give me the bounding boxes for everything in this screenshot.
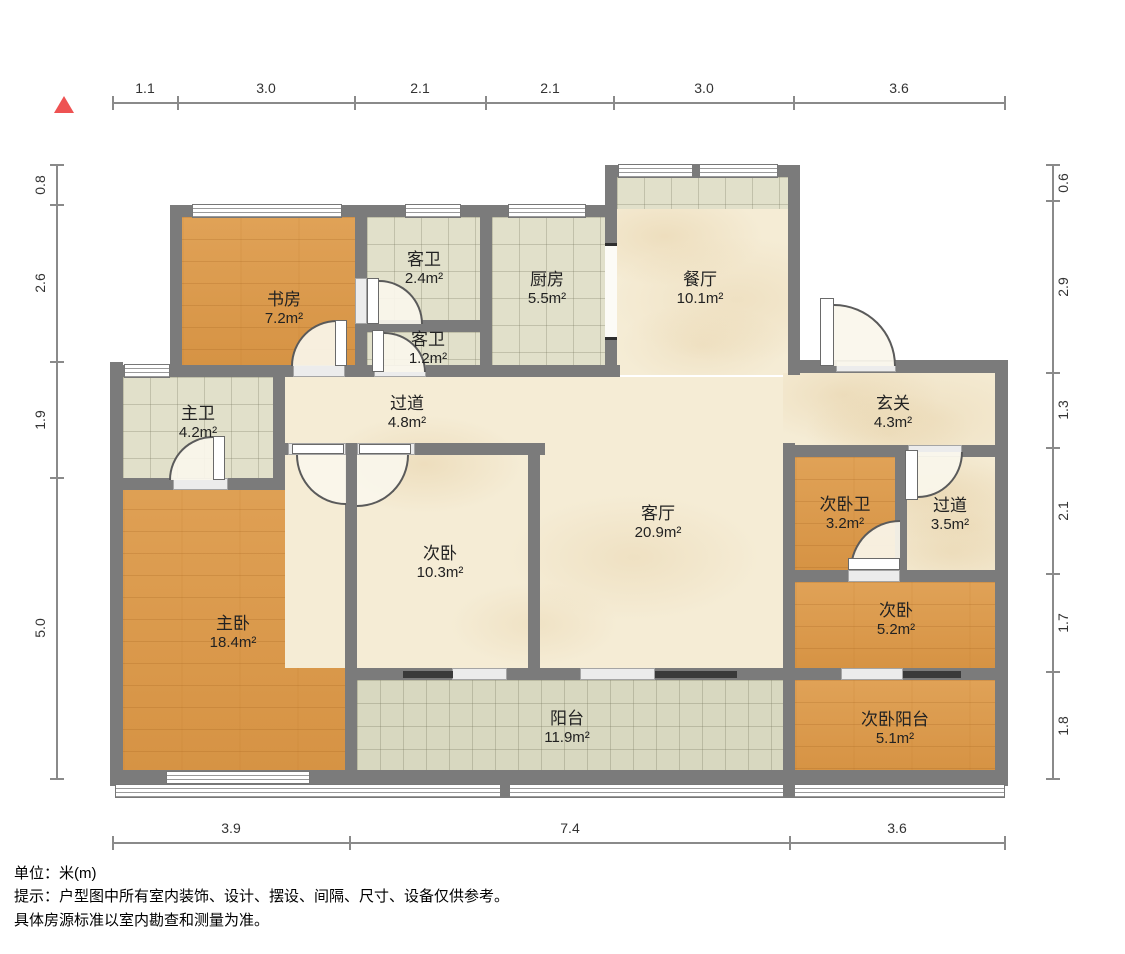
north-arrow-icon <box>54 96 74 113</box>
master-bedroom-window <box>166 771 310 784</box>
dim-right-1: 0.6 <box>1055 173 1071 192</box>
dim-top-6: 3.6 <box>889 80 908 96</box>
room-label-master-bath: 主卫 4.2m² <box>179 399 217 441</box>
dim-tick <box>1046 372 1060 374</box>
dim-tick <box>50 204 64 206</box>
room-label-study: 书房 7.2m² <box>265 285 303 327</box>
wall-dining-right <box>788 165 800 375</box>
dim-tick <box>1046 164 1060 166</box>
dim-top-4: 2.1 <box>540 80 559 96</box>
dim-tick <box>50 164 64 166</box>
footer-notes: 单位：米(m) 提示：户型图中所有室内装饰、设计、摆设、间隔、尺寸、设备仅供参考… <box>14 862 509 932</box>
dim-tick <box>112 96 114 110</box>
room-label-dining: 餐厅 10.1m² <box>677 265 724 307</box>
dim-tick <box>485 96 487 110</box>
entry-door-leaf <box>820 298 834 366</box>
dim-line-left <box>56 165 58 780</box>
dim-left-1: 0.8 <box>32 175 48 194</box>
balcony-slider-panel <box>452 668 507 680</box>
dim-tick <box>789 836 791 850</box>
dim-top-3: 2.1 <box>410 80 429 96</box>
bedroom3-slider-panel <box>841 668 903 680</box>
room-label-master: 主卧 18.4m² <box>210 609 257 651</box>
dim-right-5: 1.7 <box>1055 613 1071 632</box>
wall-bath-kitchen-divider <box>480 205 492 377</box>
bedroom2-door-leaf <box>359 444 411 454</box>
dim-tick <box>1004 836 1006 850</box>
dim-right-3: 1.3 <box>1055 400 1071 419</box>
room-label-bedroom-balcony: 次卧阳台 5.1m² <box>861 705 929 747</box>
dim-tick <box>1046 447 1060 449</box>
room-label-living: 客厅 20.9m² <box>635 499 682 541</box>
balcony-slider-panel <box>580 668 655 680</box>
dim-left-2: 2.6 <box>32 273 48 292</box>
dim-top-5: 3.0 <box>694 80 713 96</box>
dim-bottom-3: 3.6 <box>887 820 906 836</box>
dim-tick <box>354 96 356 110</box>
wall-masterbath-right <box>273 365 285 490</box>
entry-door-arc <box>834 304 896 366</box>
study-window <box>192 204 342 218</box>
dim-bottom-1: 3.9 <box>221 820 240 836</box>
room-label-bedroom2: 次卧 10.3m² <box>417 539 464 581</box>
room-label-kitchen: 厨房 5.5m² <box>528 265 566 307</box>
dim-bottom-2: 7.4 <box>560 820 579 836</box>
wall-study-left <box>170 205 182 377</box>
dim-tick <box>1046 778 1060 780</box>
glazing-mullion <box>783 784 795 798</box>
dim-left-4: 5.0 <box>32 618 48 637</box>
dining-window-mullion <box>692 164 700 178</box>
kitchen-opening <box>605 243 617 340</box>
balcony-slider-track <box>403 671 453 678</box>
dining-bay-strip <box>617 177 788 209</box>
guest-bath-door-leaf <box>367 278 379 324</box>
dim-tick <box>793 96 795 110</box>
dim-tick <box>613 96 615 110</box>
dim-top-1: 1.1 <box>135 80 154 96</box>
room-label-small-bath: 客卫 1.2m² <box>409 325 447 367</box>
bedroom3-slider-track <box>903 671 961 678</box>
study-door-leaf <box>335 320 347 366</box>
dim-tick <box>1046 200 1060 202</box>
wall-left-exterior <box>110 362 123 786</box>
dim-tick <box>1046 671 1060 673</box>
room-label-entry: 玄关 4.3m² <box>874 389 912 431</box>
kitchen-window <box>508 204 586 218</box>
bath3-door-leaf <box>848 558 900 570</box>
dim-tick <box>50 477 64 479</box>
room-label-hallway: 过道 4.8m² <box>388 389 426 431</box>
balcony-glazing <box>115 784 1005 798</box>
dim-tick <box>1046 573 1060 575</box>
dim-line-right <box>1052 165 1054 780</box>
wall-living-right <box>783 443 795 782</box>
dim-tick <box>112 836 114 850</box>
dim-top-2: 3.0 <box>256 80 275 96</box>
unit-note: 单位：米(m) <box>14 862 509 885</box>
bath3-door-sill <box>848 570 900 582</box>
room-label-hall3: 过道 3.5m² <box>931 491 969 533</box>
master-bath-window <box>124 364 170 378</box>
wall-master-right <box>345 443 357 782</box>
room-label-bedroom-bath: 次卧卫 3.2m² <box>820 490 871 532</box>
dim-right-2: 2.9 <box>1055 277 1071 296</box>
hall3-door-leaf <box>905 450 918 500</box>
dim-right-6: 1.8 <box>1055 716 1071 735</box>
guest-bath-window <box>405 204 461 218</box>
guest-bath-door-gap <box>355 278 367 324</box>
master-door-leaf <box>292 444 344 454</box>
dim-line-top <box>113 102 1005 104</box>
study-door-sill <box>293 365 345 377</box>
glazing-mullion <box>500 784 510 798</box>
dim-line-bottom <box>113 842 1005 844</box>
dim-tick <box>50 778 64 780</box>
wall-bedroom2-right <box>528 443 540 680</box>
master-bath-door-leaf <box>213 436 225 480</box>
tip-note: 提示：户型图中所有室内装饰、设计、摆设、间隔、尺寸、设备仅供参考。 <box>14 885 509 908</box>
dim-tick <box>1004 96 1006 110</box>
room-label-bedroom3: 次卧 5.2m² <box>877 596 915 638</box>
tip-note-2: 具体房源标准以室内勘查和测量为准。 <box>14 909 509 932</box>
room-label-guest-bath: 客卫 2.4m² <box>405 245 443 287</box>
wall-mid-horizontal <box>110 365 620 377</box>
dim-left-3: 1.9 <box>32 410 48 429</box>
dim-right-4: 2.1 <box>1055 501 1071 520</box>
dim-tick <box>349 836 351 850</box>
small-bath-door-leaf <box>372 330 384 372</box>
room-label-balcony: 阳台 11.9m² <box>544 704 590 746</box>
dim-tick <box>50 361 64 363</box>
floorplan-canvas: 1.1 3.0 2.1 2.1 3.0 3.6 0.8 2.6 1.9 5.0 … <box>0 0 1125 954</box>
dim-tick <box>177 96 179 110</box>
balcony-slider-track <box>655 671 737 678</box>
